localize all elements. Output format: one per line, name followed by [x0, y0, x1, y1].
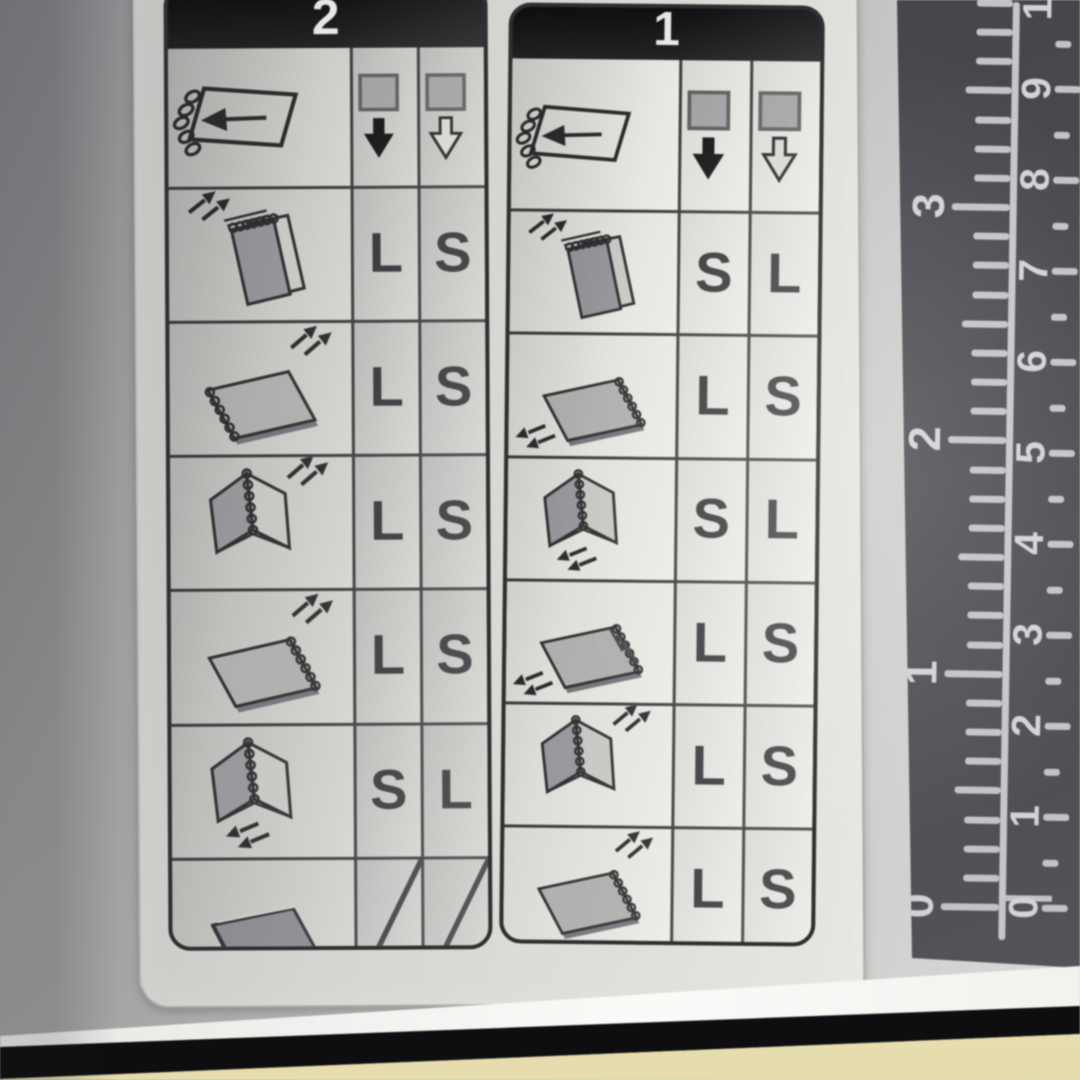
ruler: 0123012345678910 — [880, 0, 1080, 1020]
table-1-grid: SLLSSLLSLSLS — [503, 58, 820, 946]
tray-cell: S — [421, 188, 486, 319]
tray-letter: L — [370, 488, 405, 553]
tray-cell: L — [354, 189, 419, 320]
tray-cell: S — [746, 584, 815, 705]
header-cell — [168, 48, 351, 187]
inch-tick — [944, 670, 1002, 678]
sheet-face-down-arrow-icon — [681, 86, 750, 186]
tray-letter: L — [371, 622, 406, 687]
tray-cell: L — [355, 457, 420, 588]
inch-tick — [967, 612, 1003, 620]
inch-tick — [970, 408, 1006, 416]
header-cell — [751, 61, 820, 212]
tray-letter: L — [369, 354, 404, 419]
tray-cell: S — [745, 707, 814, 828]
inch-tick — [971, 379, 1007, 387]
inch-tick — [964, 845, 1000, 853]
cm-tick — [1055, 40, 1071, 47]
document-feed-direction-icon — [168, 65, 351, 171]
tray-cell: S — [744, 830, 813, 946]
booklet-standing-open-feed-icon — [171, 725, 354, 857]
tray-cell: S — [679, 213, 748, 334]
inch-tick — [973, 262, 1009, 270]
inch-tick — [955, 787, 1001, 795]
document-feed-direction-icon — [511, 85, 679, 183]
booklet-flat-binding-left-icon — [169, 323, 352, 455]
tray-letter: S — [759, 856, 797, 921]
table-2-grid: LSLSLSLSSL — [168, 47, 489, 951]
inch-tick — [948, 437, 1006, 445]
orientation-icon-cell — [172, 859, 355, 950]
tray-letter: S — [435, 353, 473, 418]
tray-letter: L — [690, 855, 725, 920]
inch-tick — [974, 174, 1010, 182]
sheet-face-down-arrow-icon — [353, 70, 417, 164]
inch-tick — [966, 87, 1012, 95]
orientation-icon-cell — [169, 323, 352, 455]
tray-letter: L — [438, 756, 473, 821]
cm-label: 2 — [1003, 714, 1050, 738]
inch-tick — [975, 116, 1011, 124]
inch-tick — [970, 466, 1006, 474]
orientation-icon-cell — [171, 725, 354, 857]
booklet-flat-closed-icon — [172, 859, 355, 950]
orientation-icon-cell — [509, 211, 677, 333]
inch-tick — [973, 233, 1009, 241]
cm-label: 8 — [1012, 168, 1059, 192]
booklet-standing-open-icon — [170, 457, 353, 589]
inch-tick — [972, 291, 1008, 299]
cm-tick — [1051, 313, 1067, 320]
tray-cell: L — [674, 706, 743, 827]
tray-cell: S — [749, 337, 818, 458]
not-applicable-cell — [424, 859, 489, 951]
inch-tick — [971, 349, 1007, 357]
inch-tick — [969, 524, 1005, 532]
inch-tick — [969, 495, 1005, 503]
tray-cell: L — [673, 830, 742, 947]
tray-letter: S — [436, 622, 474, 687]
table-1-header-bar: 1 — [512, 6, 821, 61]
inch-tick — [966, 699, 1002, 707]
inch-tick — [965, 758, 1001, 766]
cm-label: 4 — [1006, 532, 1053, 556]
ruler-scales: 0123012345678910 — [864, 0, 1080, 1023]
inch-label: 0 — [892, 893, 944, 919]
orientation-icon-cell — [169, 189, 352, 321]
inch-tick — [968, 583, 1004, 591]
inch-tick — [941, 903, 999, 911]
cm-label: 7 — [1010, 259, 1057, 283]
tray-letter: S — [695, 239, 733, 304]
photo-content: 2 LSLSLSLSSL 1 — [0, 0, 1080, 1080]
inch-tick — [962, 320, 1008, 328]
tray-letter: S — [435, 488, 473, 553]
booklet-standing-open-icon — [504, 705, 672, 827]
booklet-standing-binding-top-icon — [169, 189, 352, 321]
binding-table-1: 1 SLLSSLLSLSLS — [499, 2, 825, 946]
cm-label: 9 — [1013, 77, 1060, 101]
cm-tick — [1048, 495, 1064, 502]
booklet-flat-binding-right-icon — [171, 591, 354, 723]
tray-cell: L — [750, 214, 819, 335]
booklet-standing-open-feed-icon — [507, 458, 675, 580]
header-cell — [353, 48, 418, 186]
tray-letter: S — [760, 733, 798, 798]
cm-label: 6 — [1009, 350, 1056, 374]
orientation-icon-cell — [504, 705, 672, 827]
cm-label: 5 — [1007, 441, 1054, 465]
booklet-standing-binding-top-icon — [509, 211, 677, 333]
header-cell — [511, 58, 680, 210]
cm-label: 1 — [1002, 805, 1049, 829]
tray-letter: L — [767, 240, 802, 305]
inch-tick — [976, 58, 1012, 66]
inch-tick — [952, 203, 1010, 211]
cm-tick — [1045, 677, 1061, 684]
tray-letter: S — [692, 486, 730, 551]
cm-label: 0 — [1000, 896, 1047, 920]
tray-letter: S — [370, 756, 408, 821]
cm-tick — [1052, 222, 1068, 229]
table-1-number: 1 — [653, 2, 680, 57]
inch-tick — [977, 0, 1013, 7]
sheet-face-up-arrow-icon — [420, 69, 484, 163]
table-2-number: 2 — [312, 0, 340, 46]
tray-cell: S — [356, 725, 421, 856]
orientation-icon-cell — [503, 828, 671, 947]
header-cell — [420, 47, 485, 185]
orientation-icon-cell — [508, 335, 676, 457]
cm-label: 3 — [1004, 623, 1051, 647]
tray-cell: L — [356, 591, 421, 722]
orientation-icon-cell — [507, 458, 675, 580]
tray-cell: S — [422, 456, 487, 587]
tray-cell: L — [676, 583, 745, 704]
header-cell — [681, 60, 750, 211]
slash-icon — [424, 859, 489, 951]
tray-letter: L — [695, 362, 730, 427]
cm-tick — [1042, 859, 1058, 866]
photo-of-instruction-label: 2 LSLSLSLSSL 1 — [0, 0, 1080, 1080]
tray-cell: S — [421, 322, 486, 453]
tray-cell: L — [354, 323, 419, 454]
orientation-icon-cell — [171, 591, 354, 723]
cm-tick — [1054, 131, 1070, 138]
tray-letter: L — [693, 609, 728, 674]
not-applicable-cell — [357, 859, 422, 951]
inch-label: 3 — [903, 193, 955, 219]
cm-tick — [1044, 768, 1060, 775]
tray-letter: S — [434, 219, 472, 284]
tray-cell: L — [747, 461, 816, 582]
inch-tick — [965, 728, 1001, 736]
tray-letter: L — [764, 486, 799, 551]
tray-letter: S — [761, 610, 799, 675]
tray-cell: L — [423, 725, 488, 856]
binding-table-2: 2 LSLSLSLSSL — [163, 0, 492, 951]
tray-letter: L — [691, 732, 726, 797]
cm-tick — [1047, 586, 1063, 593]
booklet-flat-binding-right-arrow-low-icon — [508, 335, 676, 457]
tray-letter: L — [369, 220, 404, 285]
inch-tick — [976, 29, 1012, 37]
inch-tick — [963, 874, 999, 882]
slash-icon — [357, 859, 422, 951]
cm-label: 10 — [1014, 0, 1062, 21]
booklet-flat-binding-right-icon — [503, 828, 671, 947]
booklet-flat-binding-right-hatch-icon — [506, 581, 674, 703]
tray-cell: S — [423, 591, 488, 722]
sheet-face-up-arrow-icon — [752, 86, 821, 186]
tray-letter: S — [764, 363, 802, 428]
orientation-icon-cell — [170, 457, 353, 589]
tray-cell: L — [678, 336, 747, 457]
inch-tick — [975, 145, 1011, 153]
table-2-header-bar: 2 — [167, 0, 483, 49]
inch-label: 2 — [899, 426, 951, 452]
inch-tick — [967, 641, 1003, 649]
orientation-icon-cell — [506, 581, 674, 703]
tray-cell: S — [677, 460, 746, 581]
cm-tick — [1050, 404, 1066, 411]
inch-tick — [964, 816, 1000, 824]
inch-tick — [958, 553, 1004, 561]
inch-label: 1 — [895, 659, 947, 685]
